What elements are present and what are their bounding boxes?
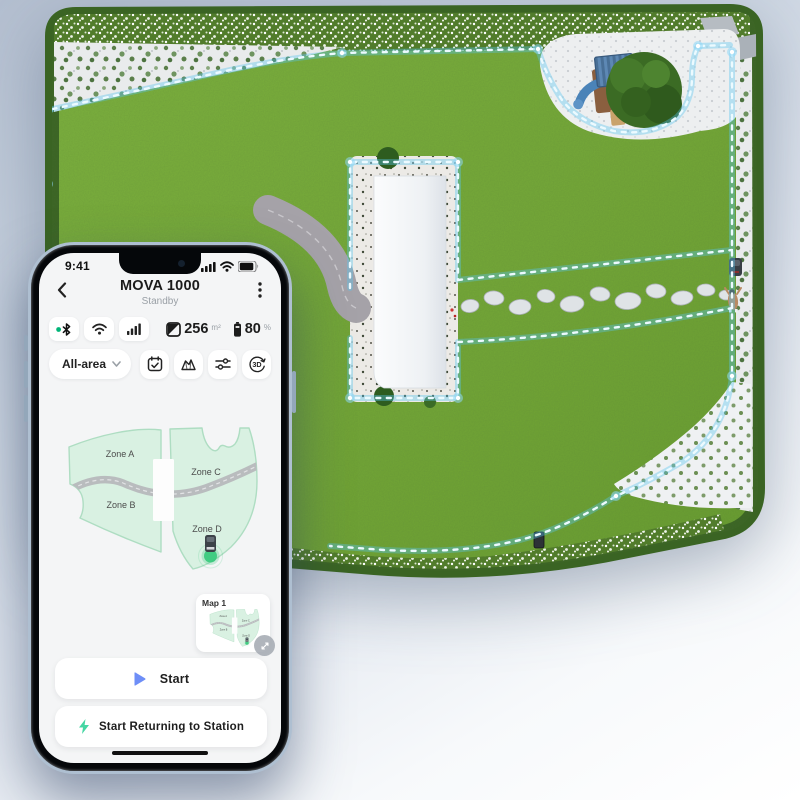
zone-a-label: Zone A — [106, 449, 135, 459]
chevron-left-icon — [57, 282, 67, 298]
chevron-down-icon — [112, 361, 121, 367]
volume-down-button — [24, 395, 28, 422]
kebab-icon — [258, 282, 262, 298]
phone-screen: 9:41 — [39, 253, 281, 763]
map-mode-button[interactable] — [174, 350, 203, 379]
status-row: 256 m² 80 % — [49, 316, 271, 342]
clock: 9:41 — [65, 259, 90, 273]
battery-unit: % — [264, 323, 271, 332]
bluetooth-icon — [56, 323, 73, 336]
zone-map[interactable]: Zone A Zone B Zone C Zone D — [39, 423, 281, 575]
play-icon — [133, 672, 146, 686]
map-terrain-icon — [180, 357, 197, 372]
start-button[interactable]: Start — [55, 658, 267, 699]
house — [350, 147, 458, 408]
volume-up-button — [24, 361, 28, 388]
toolbar: All-area — [49, 349, 271, 379]
page: 9:41 — [0, 0, 800, 800]
power-button — [292, 371, 296, 413]
mute-switch — [24, 335, 28, 351]
device-status: Standby — [39, 296, 281, 307]
more-menu-button[interactable] — [251, 281, 269, 299]
phone: 9:41 — [28, 242, 292, 774]
area-icon — [166, 322, 181, 337]
battery-value: 80 — [245, 321, 261, 337]
tree — [606, 52, 682, 128]
zone-c-label: Zone C — [191, 467, 221, 477]
back-button[interactable] — [51, 279, 73, 301]
bluetooth-chip[interactable] — [49, 317, 79, 341]
3d-view-icon: 3D — [248, 355, 266, 373]
map-card[interactable]: Map 1 — [196, 594, 270, 652]
settings-button[interactable] — [208, 350, 237, 379]
device-title: MOVA 1000 — [39, 278, 281, 294]
zone-b-label: Zone B — [106, 500, 135, 510]
notch — [119, 253, 201, 274]
area-selector-label: All-area — [62, 357, 106, 371]
3d-view-button[interactable]: 3D — [242, 350, 271, 379]
home-indicator[interactable] — [112, 751, 208, 755]
sliders-icon — [215, 357, 231, 371]
wifi-icon — [220, 261, 234, 272]
expand-icon — [260, 641, 270, 651]
wifi-icon — [92, 323, 107, 335]
app-header: MOVA 1000 Standby — [39, 277, 281, 311]
signal-strength-icon — [127, 323, 141, 335]
zone-d-label: Zone D — [192, 524, 222, 534]
map-card-label: Map 1 — [202, 598, 270, 608]
area-value: 256 — [184, 321, 208, 337]
battery-icon — [238, 261, 259, 272]
signal-chip[interactable] — [119, 317, 149, 341]
start-button-label: Start — [160, 672, 189, 686]
calendar-check-icon — [147, 356, 163, 372]
schedule-button[interactable] — [140, 350, 169, 379]
area-unit: m² — [211, 323, 220, 332]
zone-map-house — [153, 459, 174, 521]
robot-battery-icon — [233, 322, 242, 337]
camera-dot — [178, 260, 185, 267]
cellular-icon — [201, 261, 216, 272]
lightning-icon — [78, 719, 90, 734]
area-stat: 256 m² 80 % — [166, 321, 271, 337]
return-button-label: Start Returning to Station — [99, 721, 244, 733]
map-expand-button[interactable] — [254, 635, 275, 656]
wifi-chip[interactable] — [84, 317, 114, 341]
area-selector-dropdown[interactable]: All-area — [49, 349, 131, 379]
return-to-station-button[interactable]: Start Returning to Station — [55, 706, 267, 747]
3d-label: 3D — [252, 360, 261, 369]
